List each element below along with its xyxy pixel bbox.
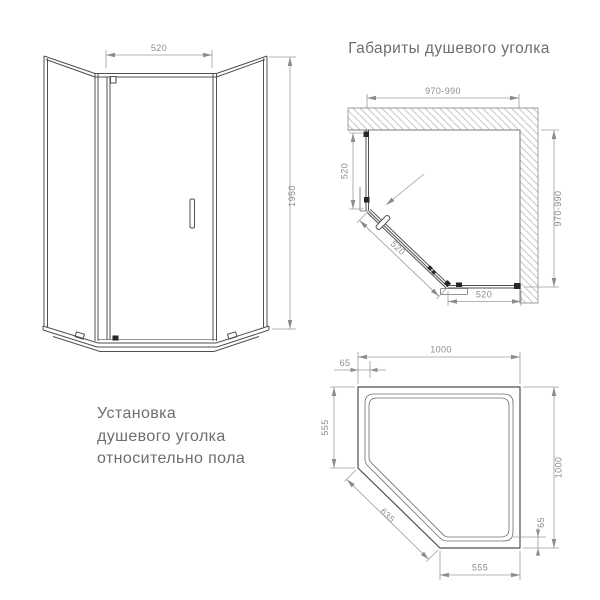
tray-bottom-offset-dimension: 65 [513,517,546,556]
door-hinge-top-mark [111,77,117,84]
plan-left-panel-label: 520 [340,163,350,179]
plan-diagonal-dimension: 520 [357,213,446,299]
tray-left-dimension: 555 [320,387,355,468]
wall-hatch [348,108,538,303]
tray-top-offset-label: 65 [340,358,351,368]
front-view-drawing: 520 [43,43,297,352]
plan-door-diagonal-label: 520 [389,239,408,257]
tray-top-offset-dimension: 65 [334,358,386,378]
technical-drawing-page: 520 [0,0,600,600]
plan-top-dimension: 970-990 [367,86,519,108]
drawing-canvas: 520 [0,0,600,600]
tray-top-width-label: 1000 [430,345,452,355]
plan-top-width-label: 970-990 [425,86,461,96]
door-pivot-bottom-mark [113,336,119,341]
plan-view-top-drawing: 970-990 [340,86,564,306]
installation-caption: Установка душевого уголка относительно п… [97,403,245,471]
plan-left-panel [360,130,370,211]
base-clip-left [75,332,85,339]
front-base-tray [43,326,269,352]
drawing-title: Габариты душевого уголка [332,40,566,58]
front-enclosure-outline [44,56,267,341]
front-door-width-label: 520 [151,43,167,53]
tray-bottom-dimension: 555 [440,551,520,580]
installation-caption-line1: Установка [97,403,245,426]
plan-diagonal-door [367,209,451,288]
tray-diagonal-label: 635 [378,506,397,524]
tray-plan-drawing: 1000 65 555 635 [320,345,564,581]
plan-bottom-dimension: 520 [448,290,521,307]
installation-caption-line3: относительно пола [97,448,245,471]
installation-caption-line2: душевого уголка [97,426,245,449]
tray-bottom-offset-label: 65 [536,517,546,528]
tray-bottom-width-label: 555 [472,563,488,573]
plan-bottom-panel-label: 520 [476,290,492,300]
tray-right-side-label: 1000 [554,457,564,479]
door-handle [190,199,195,228]
plan-right-depth-label: 970-990 [553,191,563,227]
tray-outer-edge [358,387,520,548]
front-top-dimension: 520 [106,43,212,68]
front-height-dimension: 1950 [269,57,297,329]
base-clip-right [227,332,237,339]
front-height-label: 1950 [287,185,297,207]
tray-top-dimension: 1000 [358,345,520,385]
tray-left-side-label: 555 [320,419,330,435]
door-pointer-arrow [386,174,424,205]
